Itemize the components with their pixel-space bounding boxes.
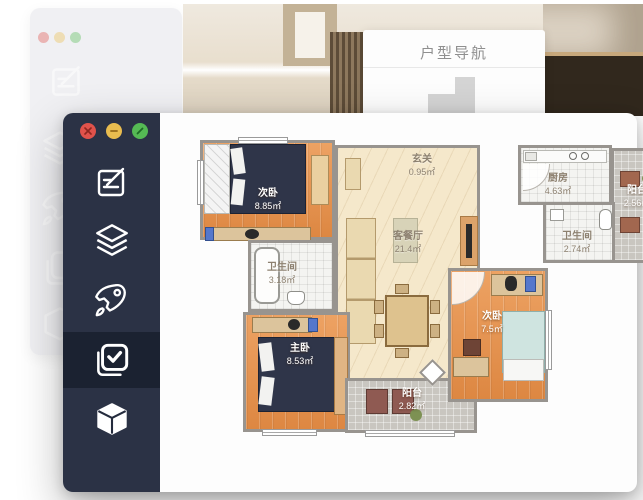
window-opening bbox=[197, 160, 204, 205]
dresser bbox=[213, 227, 311, 241]
toilet bbox=[287, 291, 305, 305]
room-bathroom-right[interactable] bbox=[543, 202, 615, 263]
layers-icon bbox=[91, 219, 133, 261]
dining-chair bbox=[395, 284, 409, 294]
room-bedroom-top-left[interactable] bbox=[200, 140, 335, 240]
zoom-button[interactable] bbox=[132, 123, 148, 139]
dining-table bbox=[385, 295, 429, 347]
sink bbox=[525, 152, 537, 161]
ghost-zoom-icon bbox=[70, 32, 81, 43]
cabinet-upper bbox=[543, 4, 643, 58]
ceiling-recess-inner bbox=[295, 12, 325, 58]
room-bathroom-left[interactable] bbox=[248, 240, 335, 312]
sidebar-item-checklist[interactable] bbox=[63, 332, 160, 388]
bathroom-sink bbox=[550, 209, 564, 221]
desk bbox=[453, 357, 489, 377]
nav-panel-title: 户型导航 bbox=[363, 42, 545, 63]
decor-item bbox=[288, 319, 300, 330]
rocket-icon bbox=[91, 279, 133, 321]
dining-chair bbox=[374, 300, 384, 314]
balcony-chair bbox=[620, 171, 640, 187]
close-button[interactable] bbox=[80, 123, 96, 139]
sidebar-item-model[interactable] bbox=[63, 394, 160, 446]
sidebar-item-edit[interactable] bbox=[63, 156, 160, 208]
dining-chair bbox=[430, 324, 440, 338]
wardrobe bbox=[204, 144, 230, 214]
stool bbox=[205, 227, 214, 241]
shoe-cabinet bbox=[345, 158, 361, 190]
decor-item bbox=[245, 229, 259, 239]
edit-note-icon bbox=[92, 162, 132, 202]
sofa bbox=[346, 218, 376, 344]
sidebar-item-rocket[interactable] bbox=[63, 274, 160, 326]
window-opening bbox=[262, 429, 317, 436]
stove-burner bbox=[581, 152, 589, 160]
bathtub bbox=[254, 247, 280, 304]
door-arc bbox=[523, 164, 550, 191]
door-arc bbox=[452, 272, 485, 305]
room-kitchen[interactable] bbox=[518, 145, 612, 205]
nav-panel-divider bbox=[363, 67, 545, 68]
screenshot-stage: 户型导航 bbox=[0, 0, 643, 500]
desk-chair bbox=[463, 339, 481, 356]
bed-blanket bbox=[503, 359, 544, 381]
dining-chair bbox=[395, 348, 409, 358]
cabinet-lower bbox=[543, 56, 643, 116]
wood-slat-partition bbox=[330, 32, 364, 116]
side-cabinet bbox=[311, 155, 329, 205]
minimize-icon bbox=[109, 126, 119, 136]
stool bbox=[308, 318, 318, 332]
washing-machine bbox=[366, 389, 388, 414]
room-bedroom-master[interactable] bbox=[243, 312, 350, 432]
minimize-button[interactable] bbox=[106, 123, 122, 139]
dining-chair bbox=[374, 324, 384, 338]
balcony-chair bbox=[620, 217, 640, 233]
sidebar bbox=[63, 113, 160, 492]
ghost-close-icon bbox=[38, 32, 49, 43]
sidebar-item-layers[interactable] bbox=[63, 214, 160, 266]
rug bbox=[393, 218, 418, 263]
dining-chair bbox=[430, 300, 440, 314]
ghost-edit-note-icon bbox=[46, 60, 88, 102]
dresser bbox=[252, 317, 312, 333]
decor-item bbox=[505, 276, 517, 291]
close-icon bbox=[83, 126, 93, 136]
stove-burner bbox=[569, 152, 577, 160]
toilet bbox=[599, 209, 612, 230]
checkbox-icon bbox=[91, 339, 133, 381]
stool bbox=[525, 276, 536, 292]
app-window: 次卧8.85㎡ 玄关0.95㎡ 厨房4.63㎡ 阳台2.56㎡ 卫生间2.74㎡… bbox=[63, 113, 637, 492]
zoom-icon bbox=[135, 126, 145, 136]
floor-plan-canvas[interactable]: 次卧8.85㎡ 玄关0.95㎡ 厨房4.63㎡ 阳台2.56㎡ 卫生间2.74㎡… bbox=[160, 113, 637, 492]
cube-icon bbox=[91, 399, 133, 441]
ghost-minimize-icon bbox=[54, 32, 65, 43]
room-bedroom-bottom-right[interactable] bbox=[448, 268, 548, 402]
window-opening bbox=[238, 137, 288, 144]
room-balcony-top[interactable] bbox=[611, 148, 643, 263]
tv bbox=[466, 224, 472, 258]
plant bbox=[410, 409, 422, 421]
window-opening bbox=[545, 310, 552, 370]
window-opening bbox=[365, 430, 455, 437]
